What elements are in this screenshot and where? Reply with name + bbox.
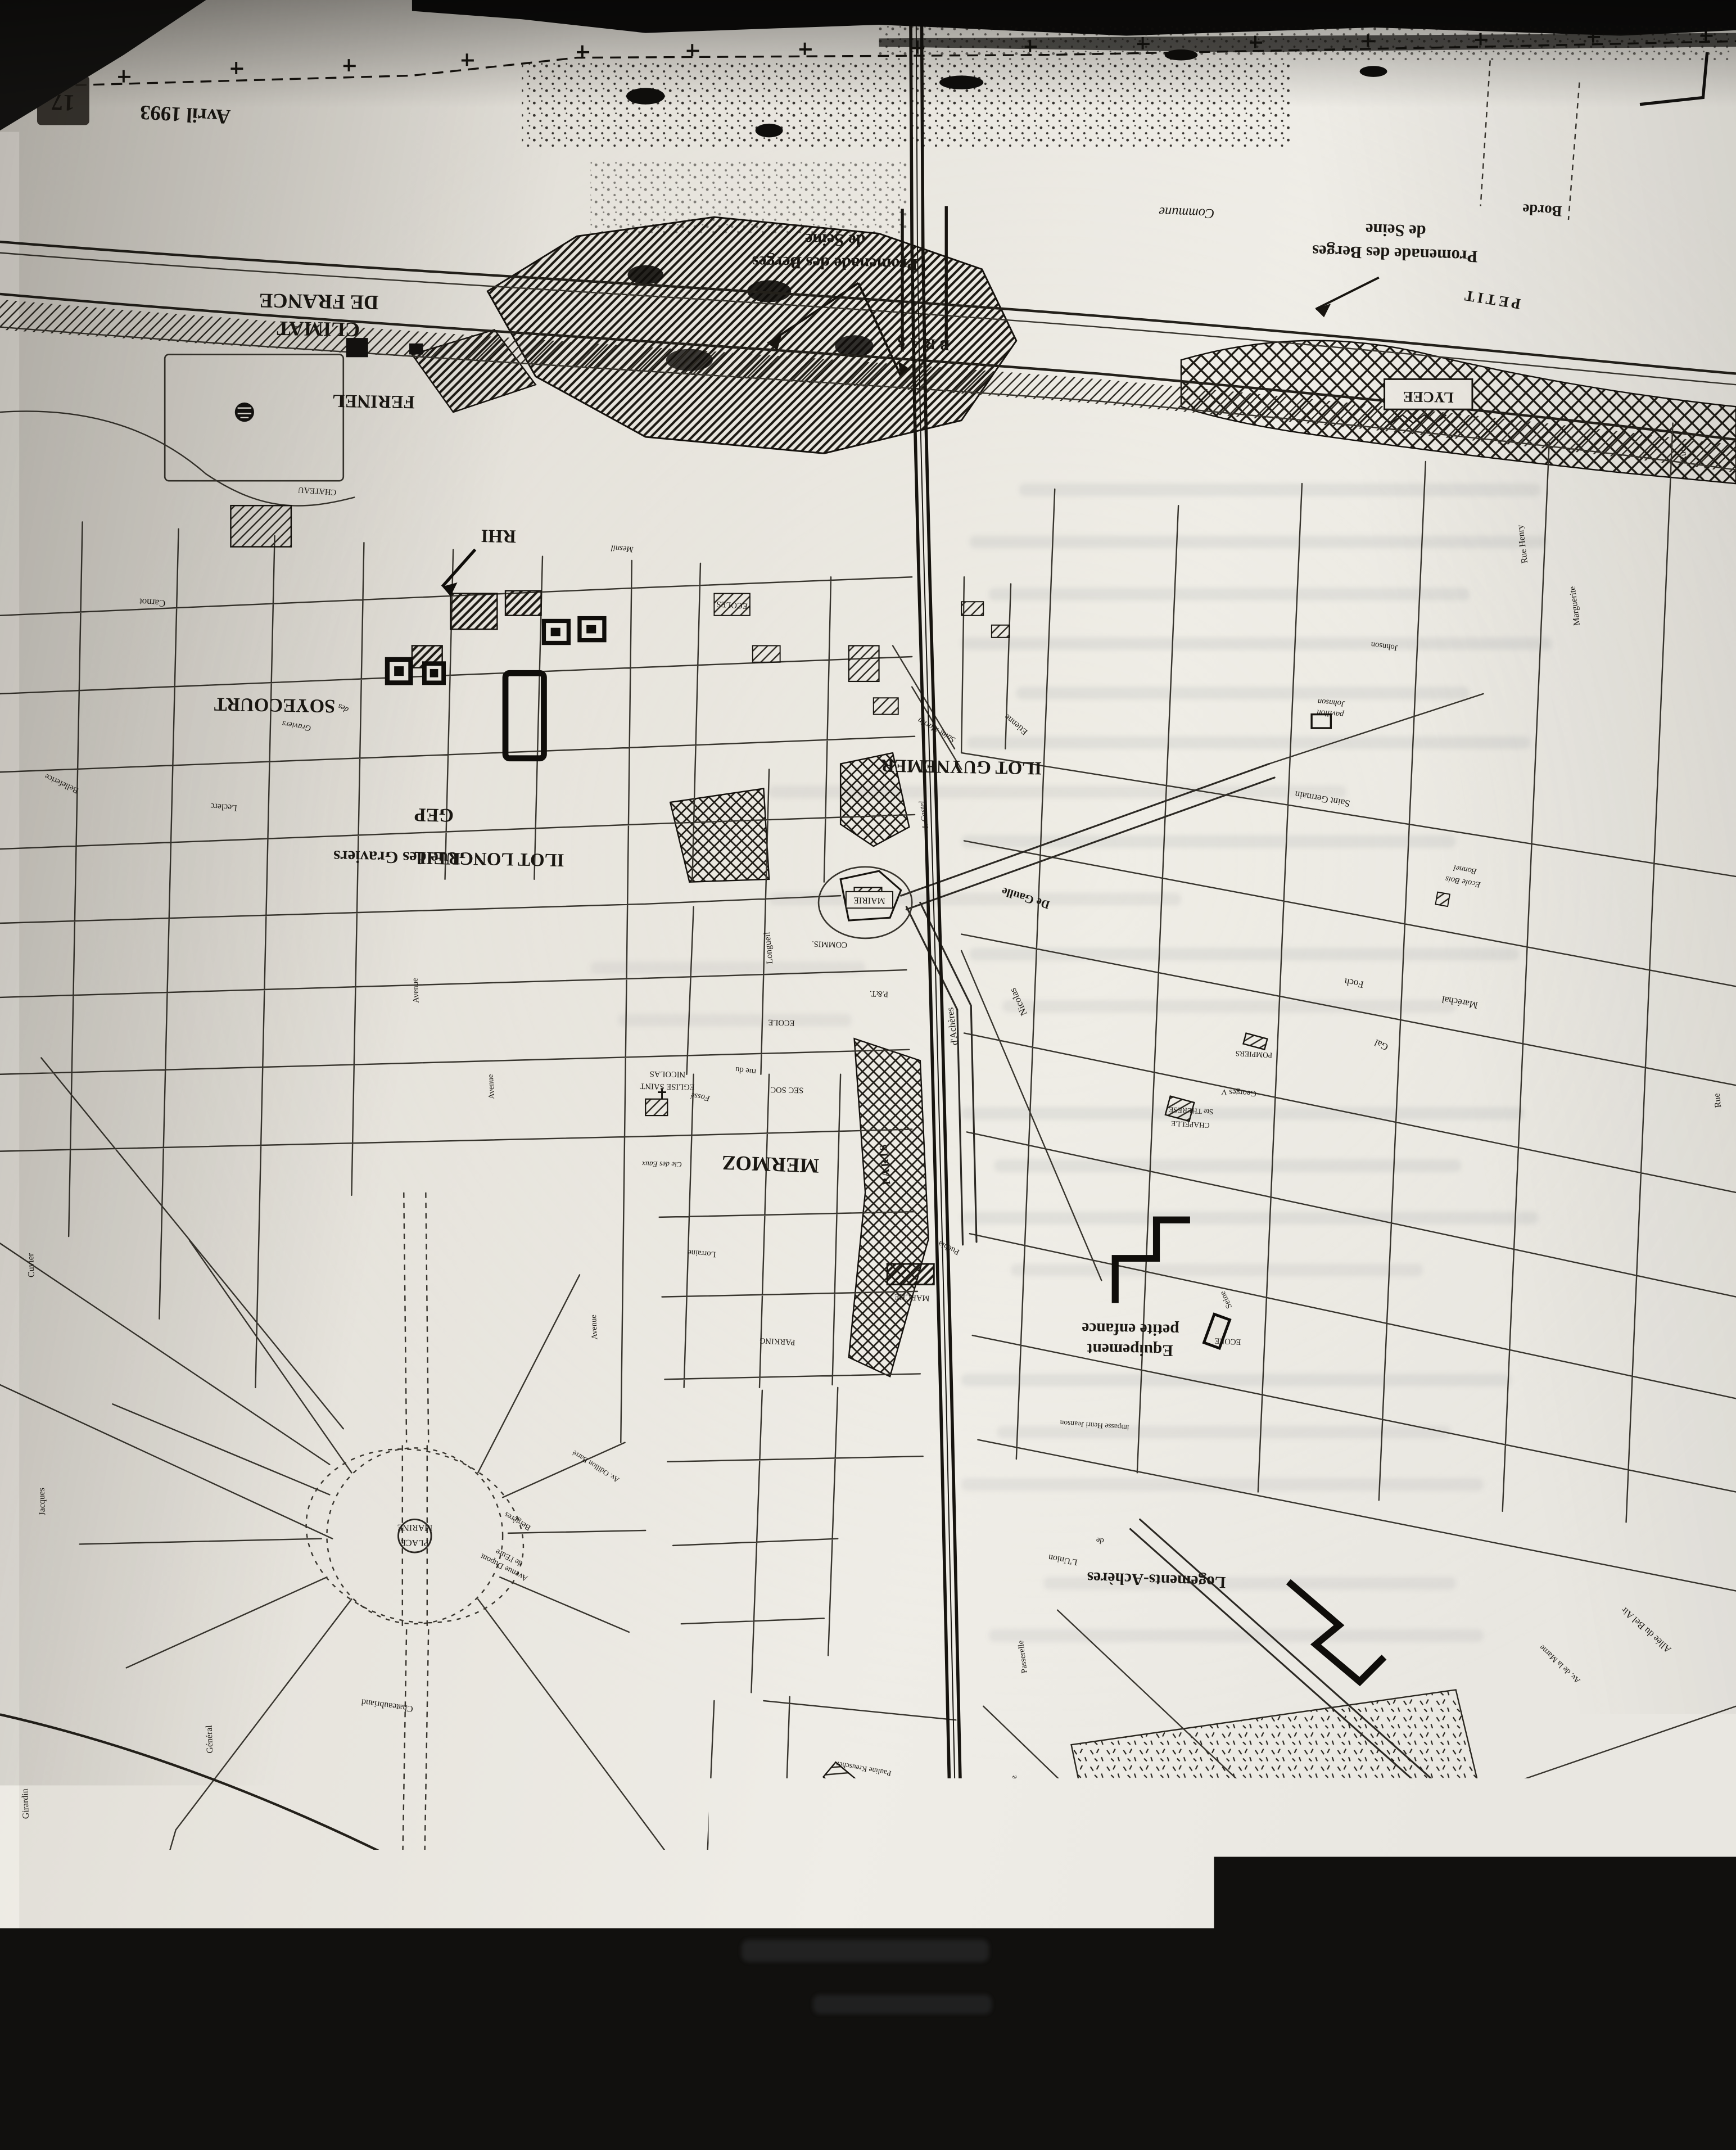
- svg-text:MARINE: MARINE: [397, 1523, 433, 1533]
- street-rue-2: Rue: [1712, 1093, 1723, 1108]
- street-voltaire: Voltaire: [133, 1935, 144, 1964]
- label-sec-soc: SEC SOC: [770, 1085, 803, 1095]
- street-lorraine: Lorraine: [688, 1248, 716, 1258]
- svg-text:PLACE: PLACE: [400, 1538, 429, 1548]
- label-commissariat: COMMIS.: [812, 939, 848, 949]
- street-carnot: Carnot: [139, 597, 166, 609]
- label-marche: MARCHE: [894, 1292, 929, 1303]
- street-avenue-3: Avenue: [589, 1315, 599, 1340]
- label-commune: Commune: [1159, 204, 1215, 221]
- label-ferinel: FERINEL: [332, 390, 415, 412]
- street-general: Général: [205, 1724, 215, 1753]
- svg-text:CLIMAT: CLIMAT: [277, 317, 360, 342]
- label-pt: P.&T.: [870, 989, 889, 999]
- label-date: Avril 1993: [139, 101, 231, 129]
- svg-text:NICOLAS: NICOLAS: [650, 1069, 686, 1079]
- svg-text:EGLISE SAINT: EGLISE SAINT: [640, 1081, 695, 1091]
- street-rue-1: Rue: [1678, 447, 1689, 462]
- label-ecole-1: ECOLE: [768, 1018, 795, 1028]
- street-avenue-1: Avenue: [410, 978, 421, 1003]
- label-ecole-2: ECOLE: [1214, 1336, 1241, 1346]
- label-mermoz: MERMOZ: [721, 1151, 819, 1178]
- svg-text:DE FRANCE: DE FRANCE: [259, 289, 378, 314]
- label-parking: PARKING: [759, 1336, 795, 1347]
- street-georges-v: Georges V: [1221, 1087, 1257, 1098]
- street-mesnil: Mesnil: [611, 543, 634, 554]
- svg-text:petite enfance: petite enfance: [1082, 1319, 1179, 1339]
- label-lycee: LYCEE: [1403, 389, 1454, 406]
- label-cie-des-eaux: Cie des Eaux: [642, 1160, 682, 1169]
- street-de: de: [1096, 1535, 1105, 1546]
- legend-hatch-swatch: [710, 2119, 815, 2150]
- street-jacques: Jacques: [37, 1488, 48, 1516]
- legend-box: [118, 2099, 860, 2150]
- label-ilot-longueil: ILOT LONGUEIL: [413, 847, 564, 870]
- label-soyecourt: SOYECOURT: [214, 693, 335, 716]
- svg-text:Promenade des Berges: Promenade des Berges: [752, 252, 917, 274]
- label-ilot-guynemer: ILOT GUYNEMER: [880, 755, 1042, 778]
- svg-text:Equipement: Equipement: [1087, 1340, 1173, 1359]
- label-rhi: RHI: [481, 525, 516, 546]
- label-borde: Borde: [1522, 201, 1563, 220]
- label-gep: GEP: [414, 804, 454, 825]
- street-girardin: Girardin: [20, 1788, 31, 1819]
- street-cardinal: Cardinal: [78, 2046, 89, 2077]
- street-cuvier: Cuvier: [26, 1253, 37, 1277]
- city-plan-map: 17 Avril 1993 CLIMAT DE FRANCE FERINEL R…: [0, 0, 1736, 2150]
- map-photo: 17 Avril 1993 CLIMAT DE FRANCE FERINEL R…: [0, 0, 1736, 2150]
- street-avenue-2: Avenue: [486, 1074, 496, 1099]
- page-edge: [0, 132, 19, 2150]
- street-leclerc: Leclerc: [210, 801, 238, 812]
- label-mairie: MAIRIE: [853, 895, 885, 905]
- svg-text:de Seine: de Seine: [1365, 220, 1426, 241]
